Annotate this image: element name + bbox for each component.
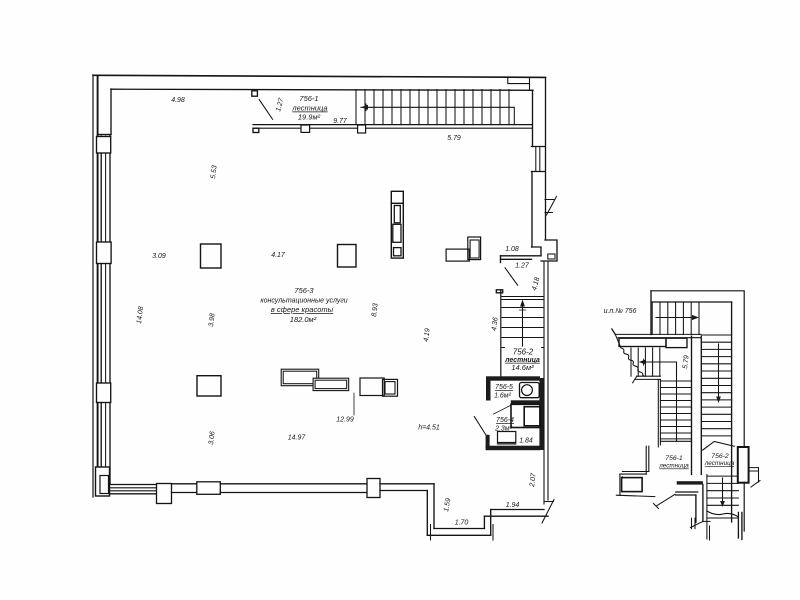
svg-text:756-1: 756-1 bbox=[665, 455, 683, 462]
svg-text:3.98: 3.98 bbox=[208, 313, 217, 327]
svg-text:756-5: 756-5 bbox=[495, 384, 513, 391]
svg-text:756-1: 756-1 bbox=[299, 94, 318, 103]
svg-text:консультационные услуги: консультационные услуги bbox=[260, 298, 347, 305]
svg-text:756-2: 756-2 bbox=[513, 348, 534, 357]
svg-text:1.08: 1.08 bbox=[505, 246, 519, 253]
svg-text:1.6м²: 1.6м² bbox=[494, 393, 512, 400]
svg-text:14.6м²: 14.6м² bbox=[511, 363, 534, 372]
svg-text:182.0м²: 182.0м² bbox=[290, 315, 317, 324]
svg-text:12.99: 12.99 bbox=[336, 417, 354, 424]
svg-text:1.84: 1.84 bbox=[519, 438, 533, 445]
svg-text:4.19: 4.19 bbox=[423, 328, 432, 342]
svg-text:756-3: 756-3 bbox=[294, 286, 314, 295]
svg-text:14.08: 14.08 bbox=[136, 306, 145, 324]
svg-text:1.27: 1.27 bbox=[275, 96, 286, 112]
svg-text:лестница: лестница bbox=[658, 463, 689, 470]
svg-text:в сфере красоты: в сфере красоты bbox=[271, 305, 334, 314]
svg-text:4.98: 4.98 bbox=[171, 97, 185, 104]
svg-text:5.53: 5.53 bbox=[210, 165, 219, 179]
svg-text:4.36: 4.36 bbox=[491, 317, 500, 331]
svg-text:1.70: 1.70 bbox=[455, 520, 469, 527]
svg-text:лестница: лестница bbox=[704, 460, 735, 467]
svg-text:лестница: лестница bbox=[291, 104, 327, 113]
svg-text:2.07: 2.07 bbox=[529, 472, 538, 488]
svg-text:3.09: 3.09 bbox=[152, 253, 166, 260]
svg-text:756-4: 756-4 bbox=[496, 417, 514, 424]
svg-text:2.3м²: 2.3м² bbox=[494, 426, 513, 433]
svg-text:5.79: 5.79 bbox=[447, 135, 461, 142]
svg-text:1.59: 1.59 bbox=[443, 498, 452, 513]
svg-text:3.06: 3.06 bbox=[208, 431, 217, 445]
svg-text:19.9м²: 19.9м² bbox=[298, 113, 321, 122]
svg-text:и.п.№ 756: и.п.№ 756 bbox=[604, 308, 637, 315]
svg-text:14.97: 14.97 bbox=[288, 435, 307, 442]
svg-text:4.17: 4.17 bbox=[271, 252, 286, 259]
svg-text:8.93: 8.93 bbox=[371, 303, 380, 317]
svg-text:756-2: 756-2 bbox=[711, 453, 729, 460]
svg-text:1.27: 1.27 bbox=[515, 263, 530, 270]
svg-text:5.79: 5.79 bbox=[682, 355, 691, 369]
svg-text:4.18: 4.18 bbox=[531, 276, 541, 291]
svg-text:9.77: 9.77 bbox=[333, 118, 348, 125]
svg-text:1.94: 1.94 bbox=[506, 502, 520, 509]
svg-text:h=4.51: h=4.51 bbox=[418, 425, 440, 432]
